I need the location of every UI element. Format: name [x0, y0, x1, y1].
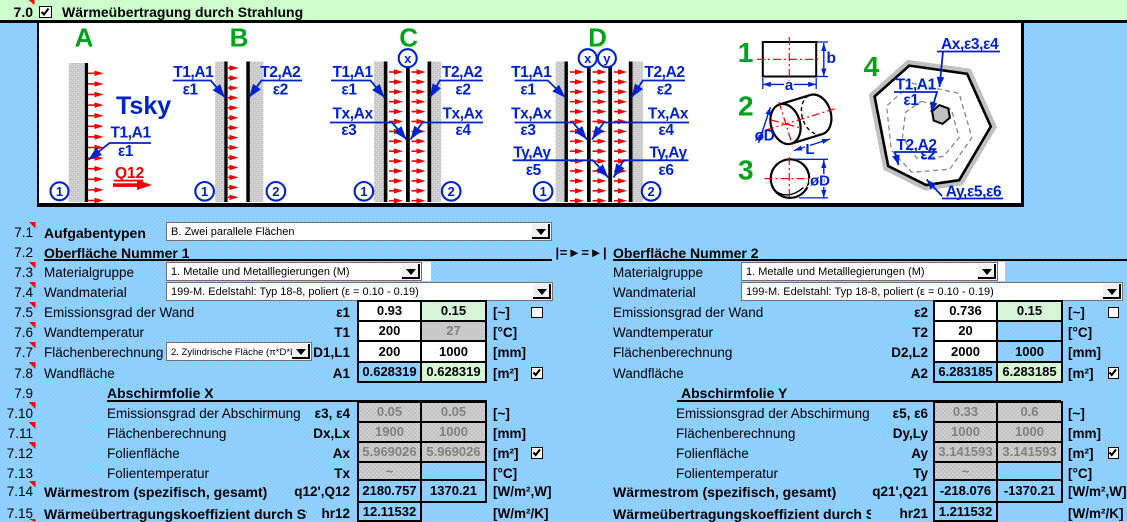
- svg-text:b: b: [826, 50, 835, 67]
- svg-text:x: x: [404, 50, 412, 65]
- svg-text:T2,A2: T2,A2: [442, 64, 482, 81]
- svg-text:ε2: ε2: [920, 146, 935, 163]
- svg-text:1: 1: [539, 183, 546, 198]
- svg-text:2: 2: [738, 90, 754, 121]
- svg-text:ε5: ε5: [526, 162, 542, 179]
- svg-text:D: D: [588, 23, 607, 52]
- svg-text:3: 3: [738, 154, 754, 185]
- svg-text:T1,A1: T1,A1: [332, 64, 373, 81]
- svg-text:ε1: ε1: [341, 81, 357, 98]
- svg-text:2: 2: [647, 183, 654, 198]
- svg-text:1: 1: [738, 37, 754, 68]
- svg-text:4: 4: [864, 50, 880, 81]
- svg-text:Tx,Ax: Tx,Ax: [511, 105, 552, 122]
- svg-text:y: y: [603, 50, 611, 65]
- svg-text:ε1: ε1: [520, 81, 536, 98]
- svg-text:øD: øD: [810, 172, 830, 189]
- svg-text:Tx,Ax: Tx,Ax: [442, 105, 483, 122]
- svg-text:2: 2: [272, 183, 279, 198]
- svg-text:ε1: ε1: [183, 81, 199, 98]
- svg-text:ε2: ε2: [273, 81, 288, 98]
- svg-text:ε2: ε2: [455, 81, 470, 98]
- svg-text:T2,A2: T2,A2: [260, 64, 300, 81]
- svg-text:ε2: ε2: [657, 81, 672, 98]
- svg-text:ε3: ε3: [341, 122, 357, 139]
- svg-text:ε3: ε3: [520, 122, 536, 139]
- svg-text:T1,A1: T1,A1: [896, 76, 937, 93]
- svg-text:ε4: ε4: [455, 122, 471, 139]
- svg-text:A: A: [75, 23, 94, 52]
- svg-text:Ty,Ay: Ty,Ay: [649, 144, 687, 161]
- svg-text:a: a: [785, 77, 794, 94]
- svg-text:Tsky: Tsky: [116, 92, 171, 120]
- svg-text:B: B: [230, 23, 249, 52]
- svg-text:ε4: ε4: [658, 122, 674, 139]
- svg-text:1: 1: [201, 183, 208, 198]
- svg-text:T1,A1: T1,A1: [173, 64, 214, 81]
- svg-text:ε6: ε6: [658, 162, 674, 179]
- svg-text:x: x: [584, 50, 592, 65]
- svg-text:ε1: ε1: [903, 92, 919, 109]
- svg-text:Q12: Q12: [115, 165, 144, 182]
- svg-text:1: 1: [360, 183, 367, 198]
- svg-text:1: 1: [56, 183, 63, 198]
- svg-text:T2,A2: T2,A2: [644, 64, 684, 81]
- svg-text:Ax,ε3,ε4: Ax,ε3,ε4: [941, 36, 999, 53]
- svg-text:T1,A1: T1,A1: [511, 64, 552, 81]
- svg-text:T1,A1: T1,A1: [110, 124, 151, 141]
- svg-text:Tx,Ax: Tx,Ax: [648, 105, 689, 122]
- svg-text:Ty,Ay: Ty,Ay: [513, 144, 551, 161]
- svg-text:2: 2: [448, 183, 455, 198]
- svg-text:ε1: ε1: [118, 143, 134, 160]
- svg-text:L: L: [805, 141, 814, 158]
- svg-text:C: C: [399, 23, 418, 52]
- svg-text:øD: øD: [755, 127, 775, 144]
- svg-text:Tx,Ax: Tx,Ax: [332, 105, 373, 122]
